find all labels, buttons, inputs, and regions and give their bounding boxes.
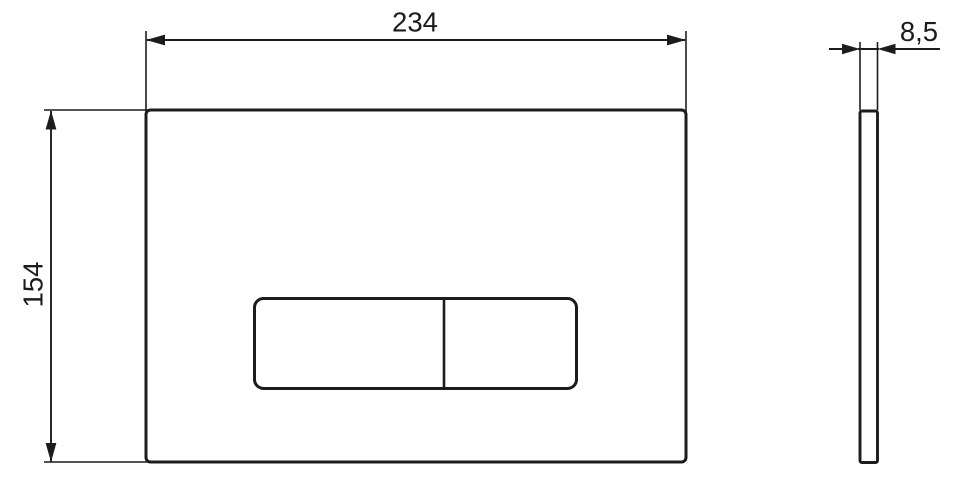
svg-text:234: 234 [392,7,438,38]
svg-text:154: 154 [18,262,49,308]
svg-text:8,5: 8,5 [900,16,938,47]
